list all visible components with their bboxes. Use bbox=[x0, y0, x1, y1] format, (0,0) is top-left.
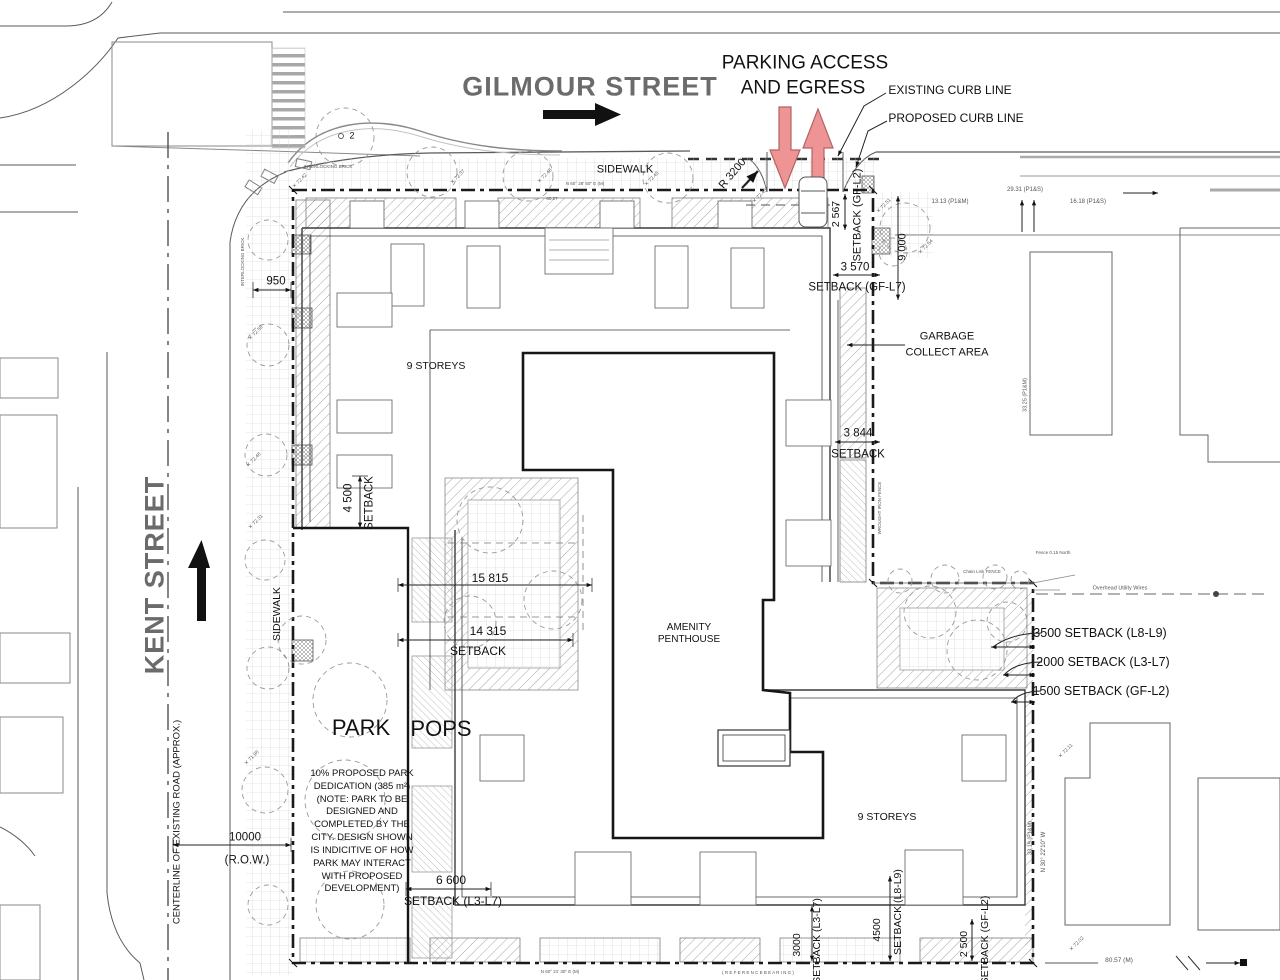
setback-3500-label: 3500 SETBACK (L8-L9) bbox=[1033, 627, 1166, 640]
gilmour-street-label: GILMOUR STREET bbox=[462, 74, 718, 101]
penthouse-pool bbox=[718, 730, 790, 766]
interlocking-brick-label-2: INTERLOCKING BRICK bbox=[304, 165, 353, 170]
tree-2-label: 2 bbox=[349, 132, 354, 141]
parking-access-label-1: PARKING ACCESS bbox=[722, 54, 888, 73]
garbage-label-1: GARBAGE bbox=[920, 332, 974, 343]
setback-2000-label: 2000 SETBACK (L3-L7) bbox=[1036, 656, 1169, 669]
dim-2500-bottom: 2 500 bbox=[959, 931, 970, 957]
dim-3570: 3 570 bbox=[841, 262, 870, 274]
dim-9000: 9 000 bbox=[898, 233, 909, 261]
overhead-wires-label: Overhead Utility Wires bbox=[1093, 586, 1148, 592]
storeys-nw-label: 9 STOREYS bbox=[407, 361, 466, 372]
survey-1313: 13.13 (P1&M) bbox=[931, 199, 968, 205]
bearing-east-label: N 30° 22'10" W bbox=[1041, 832, 1047, 873]
garbage-label-2: COLLECT AREA bbox=[906, 348, 989, 359]
park-note: 10% PROPOSED PARK DEDICATION (385 m²) (N… bbox=[294, 768, 430, 896]
amenity-label-1: AMENITY bbox=[667, 623, 711, 633]
bearing-top-label: N 60° 28' 50" E (M) bbox=[566, 182, 605, 187]
interlocking-brick-label-1: INTERLOCKING BRICK bbox=[241, 238, 246, 287]
bearing-bottom-label: N 60° 21' 30" E (M) bbox=[541, 970, 580, 975]
setback-gfl7-label: SETBACK (GF-L7) bbox=[808, 282, 905, 294]
neighbour-buildings-west bbox=[0, 358, 70, 980]
setback-bottom-3: SETBACK (GF-L2) bbox=[980, 896, 991, 980]
survey-3325: 33.25 (P1&M) bbox=[1023, 378, 1029, 412]
car-symbol bbox=[799, 177, 827, 227]
dim-950: 950 bbox=[266, 276, 285, 288]
kent-street-label: KENT STREET bbox=[142, 476, 169, 675]
tree-2-marker bbox=[339, 134, 344, 139]
pops-label: POPS bbox=[410, 718, 471, 740]
dim-14315: 14 315 bbox=[470, 625, 507, 637]
centerline-label: CENTERLINE OF EXISTING ROAD (APPROX.) bbox=[172, 720, 182, 924]
park-label: PARK bbox=[332, 717, 390, 739]
existing-curb-leader bbox=[838, 93, 886, 156]
existing-curb-label: EXISTING CURB LINE bbox=[888, 84, 1011, 96]
park-boundary bbox=[293, 528, 408, 963]
dim-6027: 60.27 bbox=[546, 197, 557, 202]
survey-2931: 29.31 (P1&S) bbox=[1007, 187, 1043, 193]
amenity-label-2: PENTHOUSE bbox=[658, 635, 720, 645]
lobby-entrance bbox=[545, 228, 613, 274]
row-label: (R.O.W.) bbox=[225, 855, 270, 867]
dim-15815: 15 815 bbox=[472, 572, 509, 584]
dim-3000-bottom: 3000 bbox=[792, 933, 803, 956]
kent-direction-arrow bbox=[188, 540, 210, 621]
dim-8057: 80.57 (M) bbox=[1105, 958, 1133, 965]
proposed-curb-label: PROPOSED CURB LINE bbox=[888, 112, 1023, 124]
site-plan-linework bbox=[0, 0, 1280, 980]
dim-3844: 3 844 bbox=[844, 428, 873, 440]
parking-access-label-2: AND EGRESS bbox=[741, 79, 866, 98]
survey-1618: 16.18 (P1&S) bbox=[1070, 199, 1106, 205]
dim-4500-bottom: 4500 bbox=[872, 918, 883, 941]
setback-bottom-2: SETBACK (L8-L9) bbox=[893, 869, 904, 955]
setback-ne2-label: SETBACK bbox=[831, 449, 885, 461]
setback-gfl2-ne-label: SETBACK (GF-L2) bbox=[853, 169, 864, 262]
setback-sw-label: SETBACK (L3-L7) bbox=[404, 895, 502, 907]
survey-3319: 33.19 (P1&M) bbox=[1028, 821, 1034, 855]
dim-10000: 10000 bbox=[229, 832, 261, 844]
fence-015-label: Fence 0.15 North bbox=[1036, 551, 1071, 556]
dim-2567: 2 567 bbox=[831, 201, 842, 227]
setback-bottom-1: SETBACK (L3-L7) bbox=[812, 898, 823, 980]
reference-bearing-label: ( R E F E R E N C E B E A R I N G ) bbox=[722, 971, 794, 976]
chainlink-fence-label: Chain Link FENCE bbox=[963, 570, 1001, 575]
setback-1500-label: 1500 SETBACK (GF-L2) bbox=[1033, 685, 1170, 698]
sidewalk-left-label: SIDEWALK bbox=[272, 587, 283, 641]
dim-6600: 6 600 bbox=[436, 874, 466, 886]
wrought-iron-label: WROUGHT IRON FENCE bbox=[878, 482, 883, 535]
gilmour-direction-arrow bbox=[543, 103, 621, 126]
dim-4500-west: 4 500 bbox=[343, 484, 355, 513]
setback-west-label: SETBACK bbox=[364, 476, 376, 530]
sidewalk-top-label: SIDEWALK bbox=[597, 165, 653, 176]
neighbour-buildings-east bbox=[1030, 228, 1280, 930]
site-plan-drawing: GILMOUR STREET KENT STREET CENTERLINE OF… bbox=[0, 0, 1280, 980]
setback-mid-label: SETBACK bbox=[450, 645, 506, 657]
storeys-se-label: 9 STOREYS bbox=[858, 812, 917, 823]
